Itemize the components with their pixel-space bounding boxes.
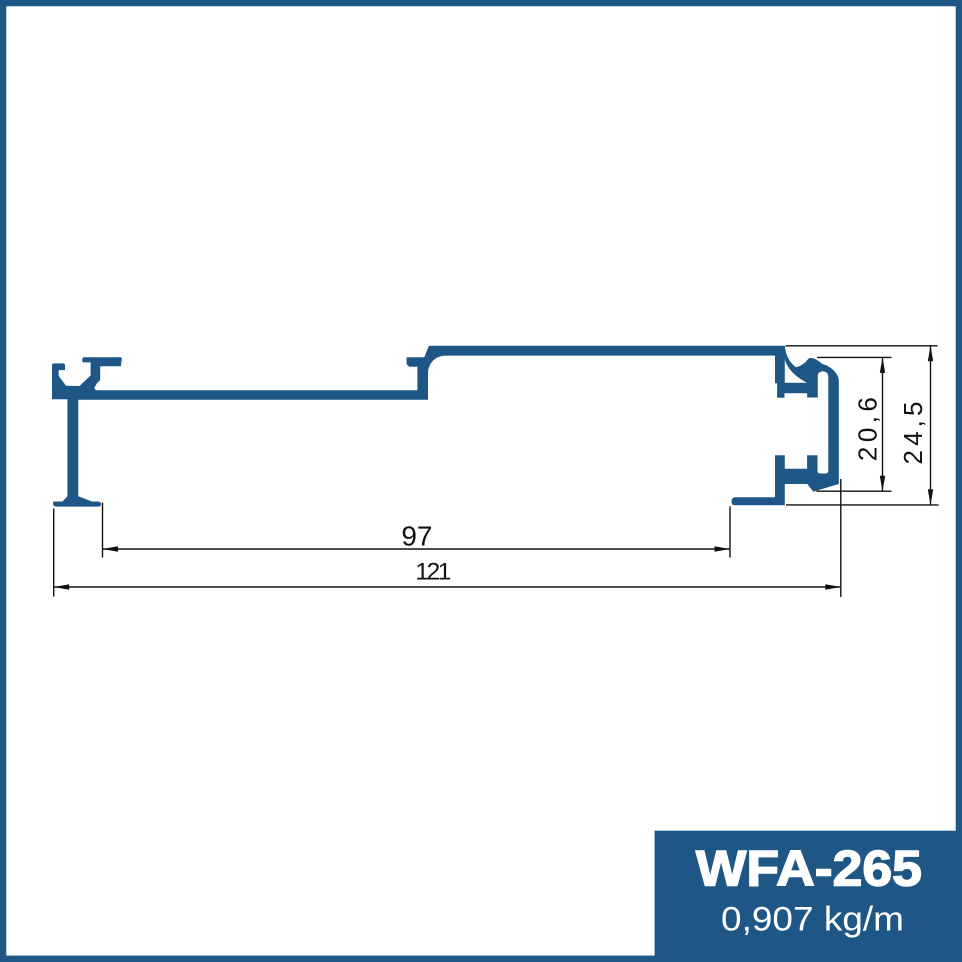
svg-text:97: 97: [401, 521, 432, 552]
svg-text:24,5: 24,5: [898, 402, 928, 465]
svg-text:WFA-265: WFA-265: [696, 840, 922, 896]
svg-text:0,907 kg/m: 0,907 kg/m: [721, 901, 904, 939]
svg-text:121: 121: [415, 558, 451, 585]
svg-text:20,6: 20,6: [852, 397, 882, 461]
